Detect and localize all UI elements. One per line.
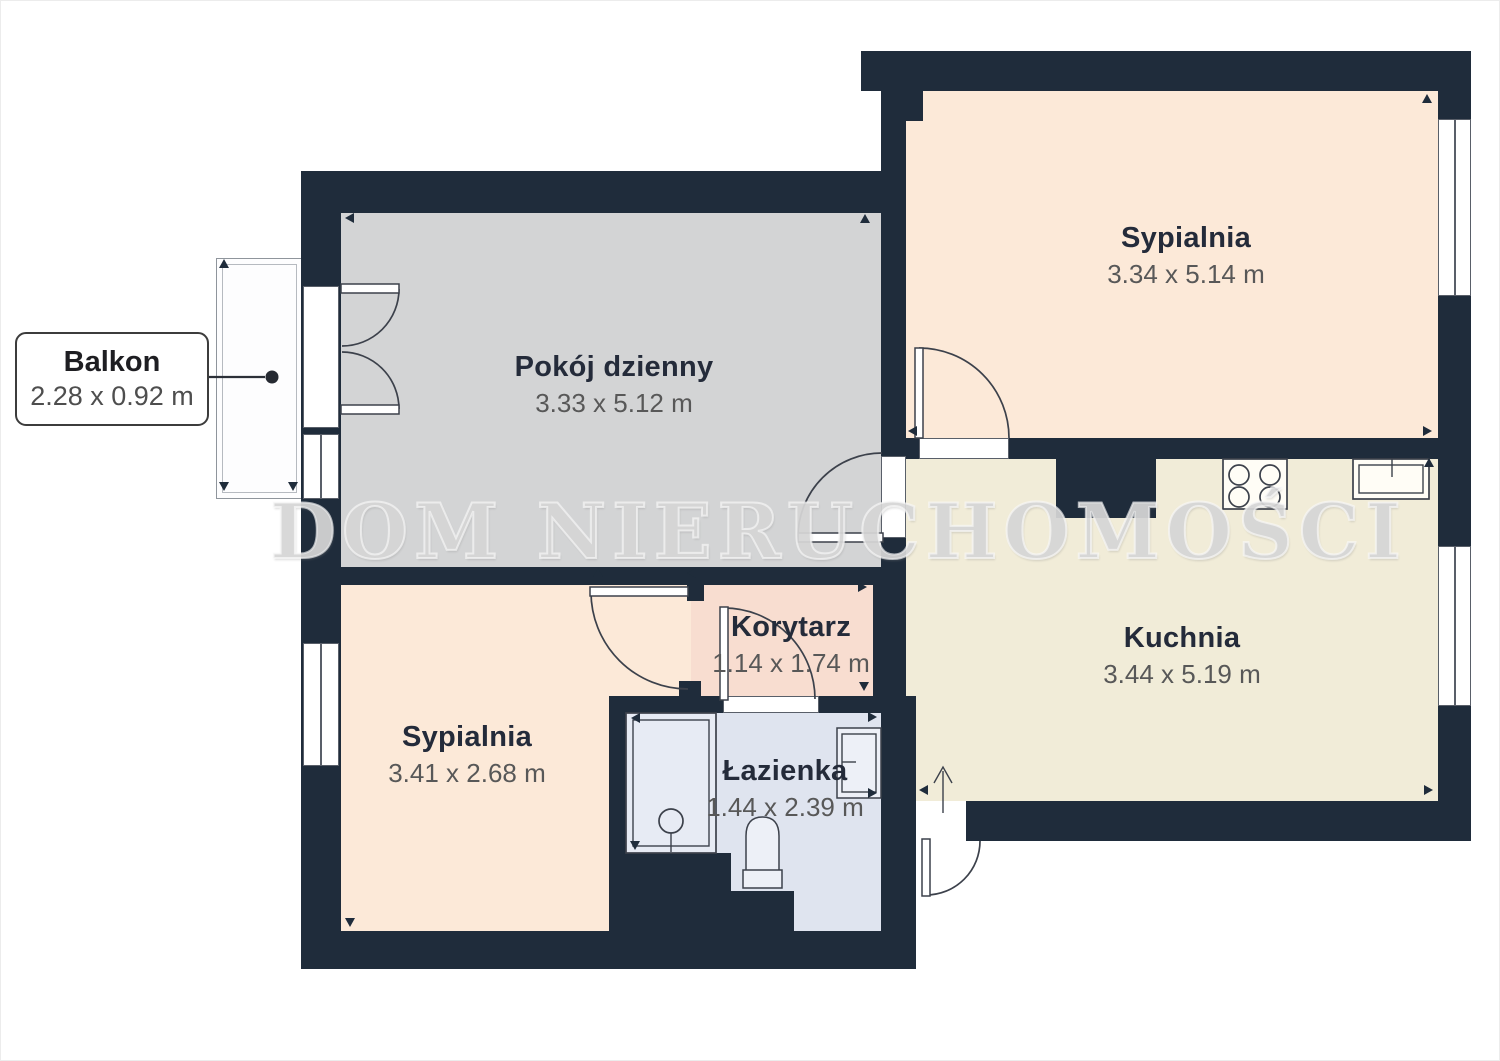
balcony-french-door	[341, 284, 399, 414]
room-dims: 1.14 x 1.74 m	[712, 648, 870, 679]
room-label-bedroom1: Sypialnia 3.34 x 5.14 m	[1107, 222, 1265, 290]
room-title: Pokój dzienny	[515, 351, 714, 384]
room-dims: 3.33 x 5.12 m	[515, 388, 714, 419]
watermark: DOM NIERUCHOMOŚCI	[270, 487, 1407, 576]
room-dims: 3.44 x 5.19 m	[1103, 659, 1261, 690]
balcony-title: Balkon	[64, 346, 161, 379]
entrance-door	[922, 839, 980, 896]
balcony-leader	[206, 371, 279, 384]
room-label-living: Pokój dzienny 3.33 x 5.12 m	[515, 351, 714, 419]
room-label-kitchen: Kuchnia 3.44 x 5.19 m	[1103, 622, 1261, 690]
room-title: Korytarz	[712, 611, 870, 644]
shower	[626, 713, 716, 853]
room-label-bathroom: Łazienka 1.44 x 2.39 m	[706, 755, 864, 823]
bedroom2-door	[590, 587, 688, 689]
balcony-label-box: Balkon 2.28 x 0.92 m	[15, 332, 209, 426]
floor-plan: .arc{fill:none;stroke:#3c414b;stroke-wid…	[0, 0, 1500, 1061]
balcony-dims: 2.28 x 0.92 m	[30, 381, 194, 412]
bedroom1-door	[915, 348, 1009, 438]
toilet	[743, 817, 782, 888]
room-label-hallway: Korytarz 1.14 x 1.74 m	[712, 611, 870, 679]
room-dims: 1.44 x 2.39 m	[706, 792, 864, 823]
room-dims: 3.34 x 5.14 m	[1107, 259, 1265, 290]
room-title: Kuchnia	[1103, 622, 1261, 655]
room-title: Sypialnia	[1107, 222, 1265, 255]
entrance-arrow	[934, 767, 952, 813]
room-title: Łazienka	[706, 755, 864, 788]
room-title: Sypialnia	[388, 721, 546, 754]
room-label-bedroom2: Sypialnia 3.41 x 2.68 m	[388, 721, 546, 789]
room-dims: 3.41 x 2.68 m	[388, 758, 546, 789]
